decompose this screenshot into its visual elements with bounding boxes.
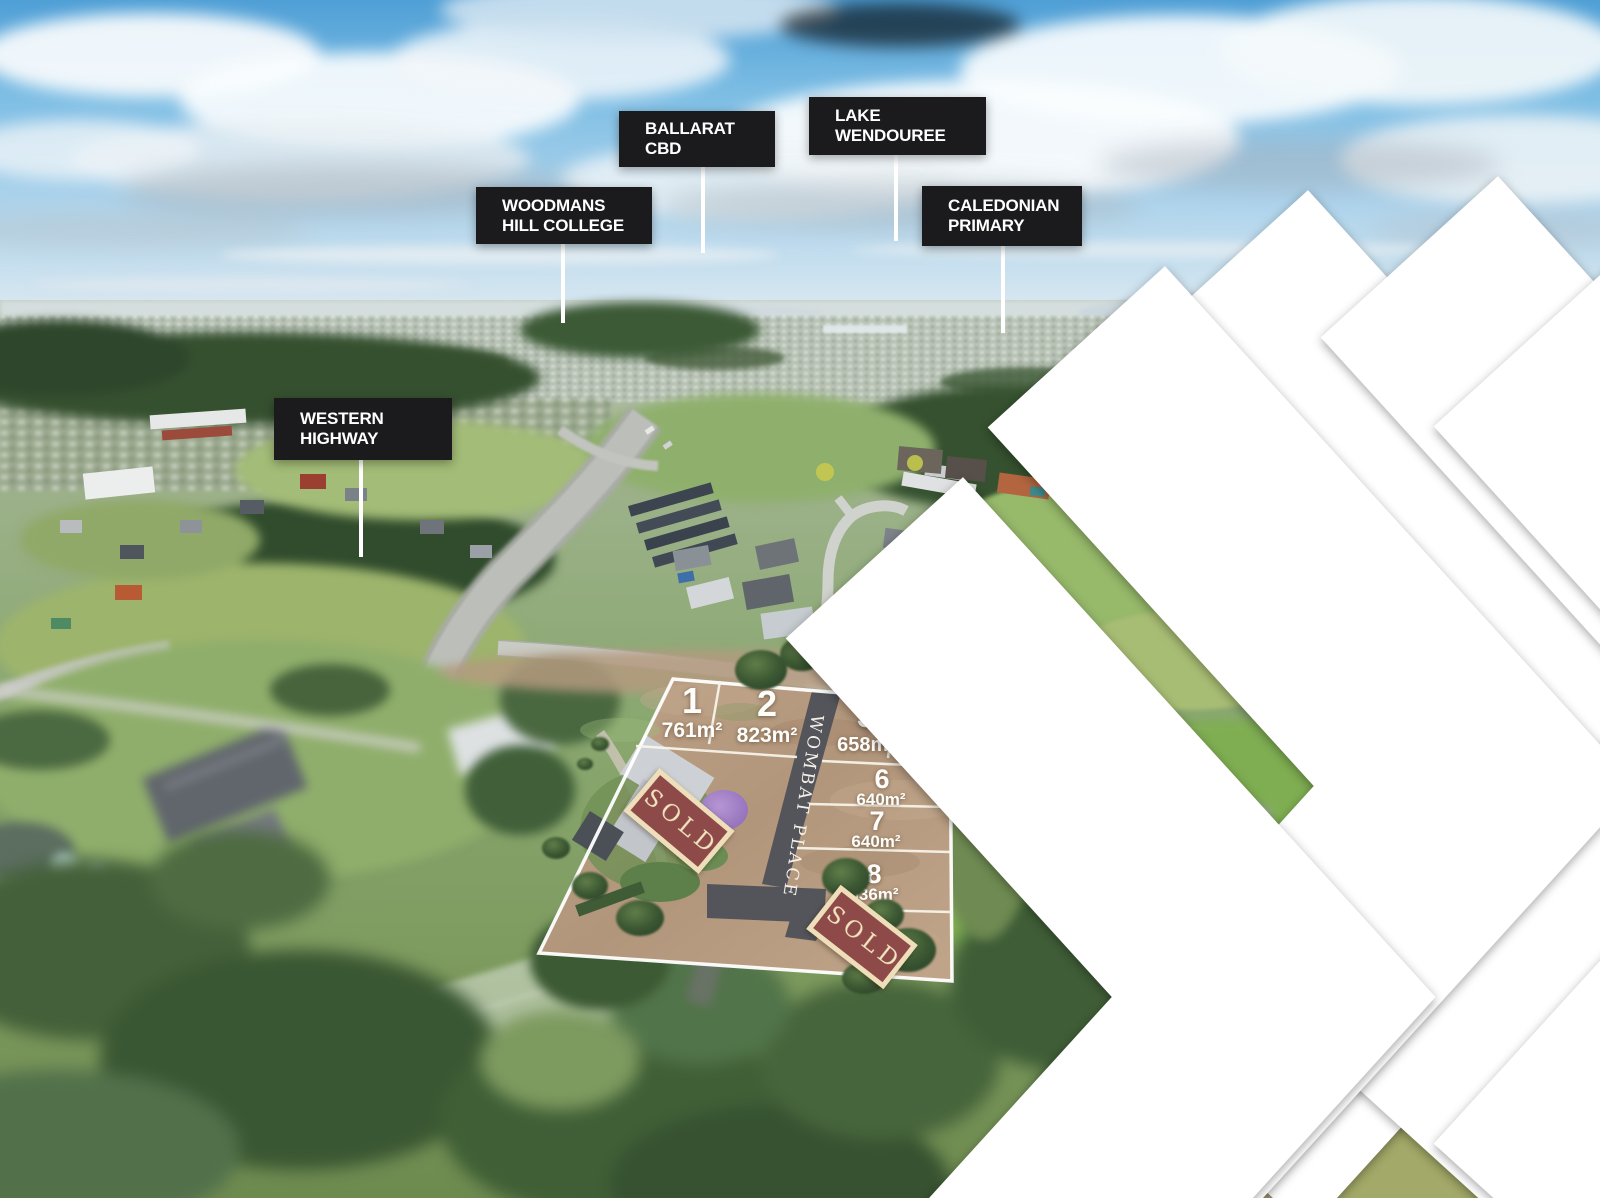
sign-western-highway: WESTERN HIGHWAY (274, 398, 452, 460)
sign-woodmans-hill-college: WOODMANS HILL COLLEGE (476, 187, 652, 244)
sign-caledonian-primary: CALEDONIAN PRIMARY (922, 186, 1082, 246)
aerial-site-photo: 1 761m² 2 823m² 3 658m² 4 658m² 6 640m² … (0, 0, 1600, 1198)
chevron-right-icon (274, 398, 1600, 1198)
sign-ballarat-cbd: BALLARAT CBD (619, 111, 775, 167)
sign-lake-wendouree: LAKE WENDOUREE (809, 97, 986, 155)
